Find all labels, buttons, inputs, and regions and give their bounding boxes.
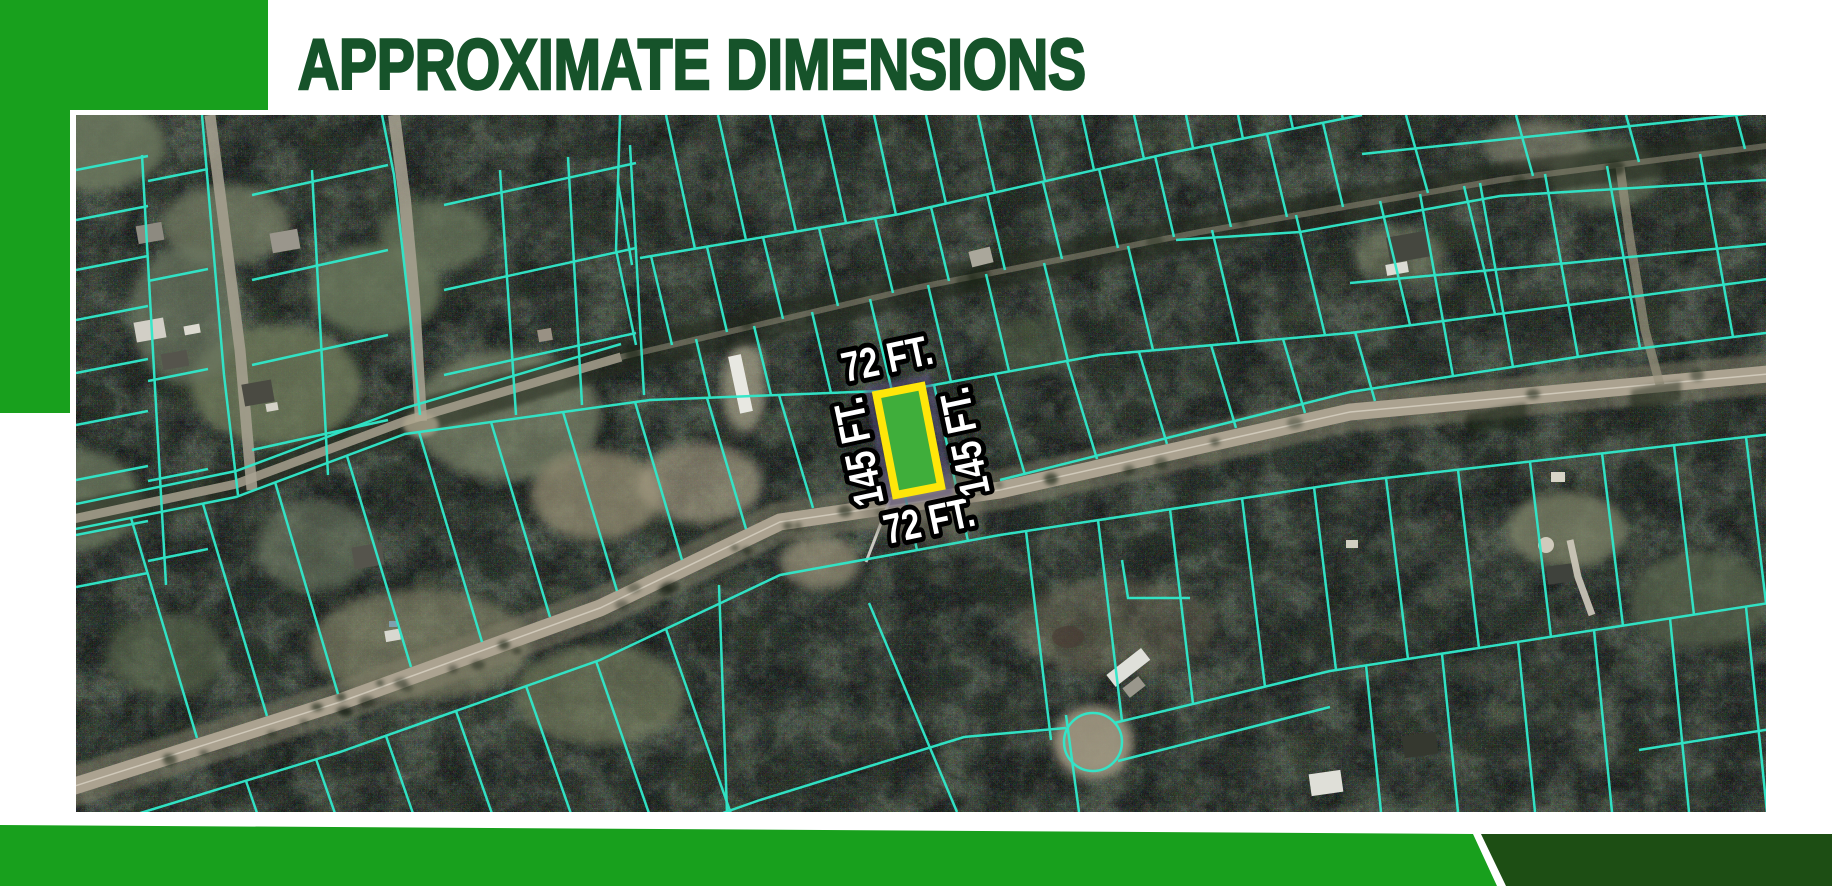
- svg-text:APPROXIMATE DIMENSIONS: APPROXIMATE DIMENSIONS: [298, 26, 1086, 105]
